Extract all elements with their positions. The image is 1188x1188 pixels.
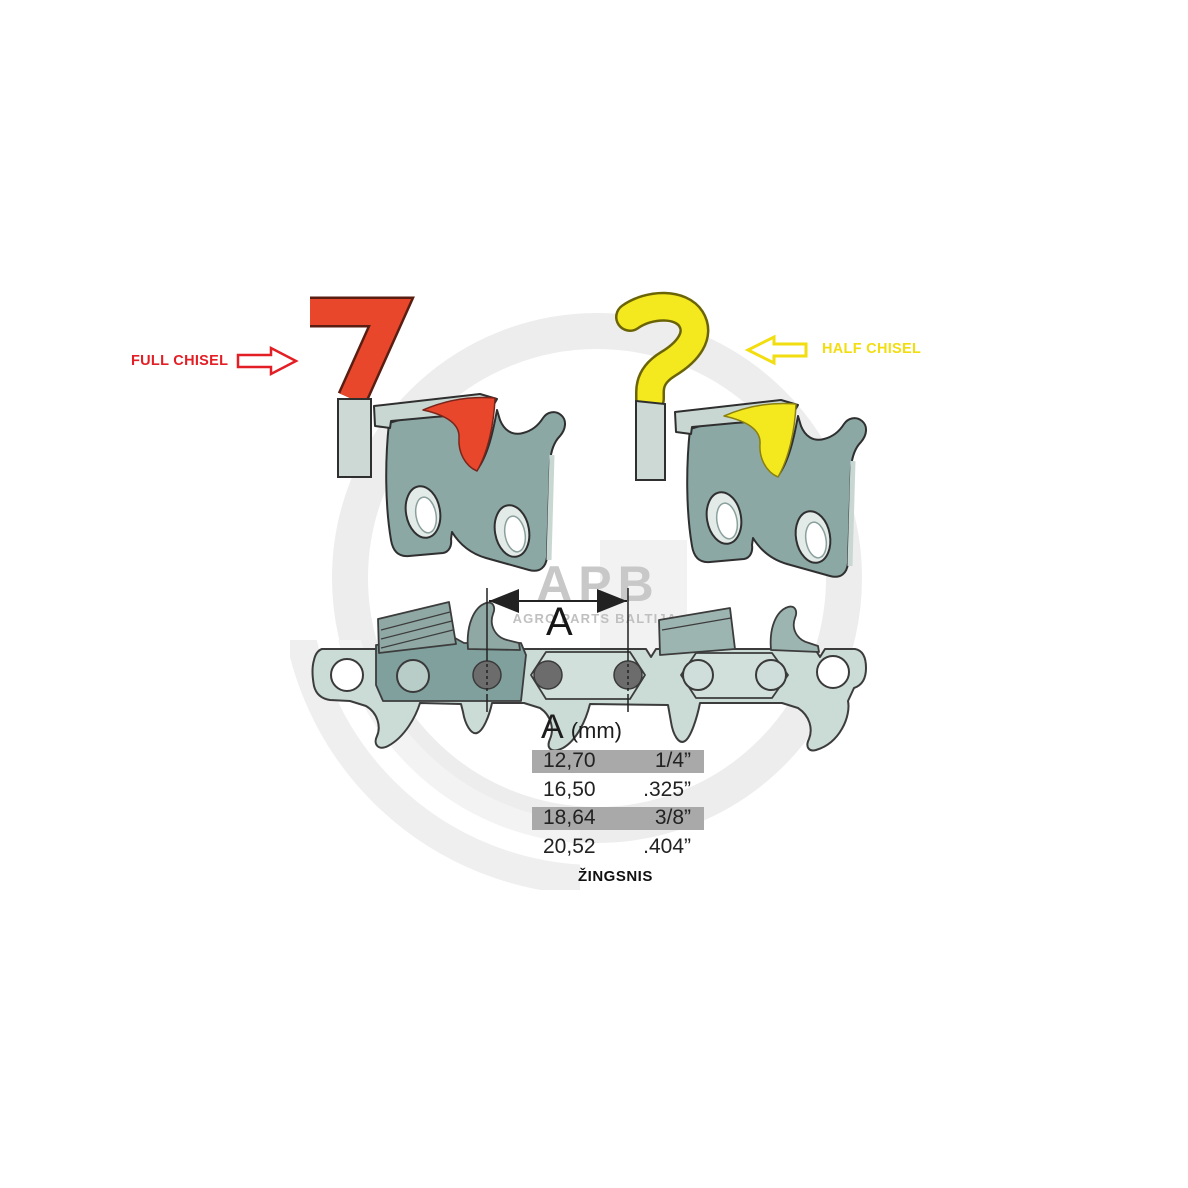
chain-hole xyxy=(756,660,786,690)
pitch-inch: .404” xyxy=(643,835,704,859)
full-chisel-shank xyxy=(338,399,371,477)
pitch-table: 12,70 1/4” 16,50 .325” 18,64 3/8” 20,52 … xyxy=(532,750,704,864)
link-side-highlight xyxy=(549,455,552,560)
dimension-letter: A xyxy=(546,600,573,645)
pitch-table-caption: ŽINGSNIS xyxy=(578,868,653,885)
chain-hole xyxy=(331,659,363,691)
chain-hole xyxy=(683,660,713,690)
diagram-canvas: APB AGRO PARTS BALTIJA xyxy=(0,0,1188,1188)
pitch-mm: 12,70 xyxy=(532,749,596,773)
pitch-inch: 3/8” xyxy=(655,806,704,830)
pitch-table-header: A (mm) xyxy=(541,708,622,747)
half-chisel-arrow-icon xyxy=(748,337,806,363)
pitch-table-header-unit: (mm) xyxy=(571,718,622,744)
half-chisel-label: HALF CHISEL xyxy=(822,341,921,357)
chainsaw-chain-pitch-diagram: APB AGRO PARTS BALTIJA xyxy=(0,0,1188,1188)
chain-cutter-blade xyxy=(771,607,819,652)
chain-hole xyxy=(397,660,429,692)
pitch-mm: 16,50 xyxy=(532,778,596,802)
pitch-table-row: 16,50 .325” xyxy=(532,779,704,802)
full-chisel-label: FULL CHISEL xyxy=(131,353,228,369)
watermark-name: AGRO PARTS BALTIJA xyxy=(513,611,678,626)
pitch-table-row: 12,70 1/4” xyxy=(532,750,704,773)
pitch-table-row: 18,64 3/8” xyxy=(532,807,704,830)
half-chisel-shank xyxy=(636,401,665,480)
chain-hole xyxy=(817,656,849,688)
pitch-mm: 20,52 xyxy=(532,835,596,859)
half-chisel-link xyxy=(675,400,866,577)
full-chisel-arrow-icon xyxy=(238,348,296,374)
pitch-table-row: 20,52 .404” xyxy=(532,836,704,859)
pitch-mm: 18,64 xyxy=(532,806,596,830)
link-side-highlight xyxy=(850,461,853,566)
pitch-table-header-letter: A xyxy=(541,708,564,747)
full-chisel-link xyxy=(374,394,565,571)
pitch-inch: 1/4” xyxy=(655,749,704,773)
pitch-inch: .325” xyxy=(643,778,704,802)
rivet xyxy=(534,661,562,689)
